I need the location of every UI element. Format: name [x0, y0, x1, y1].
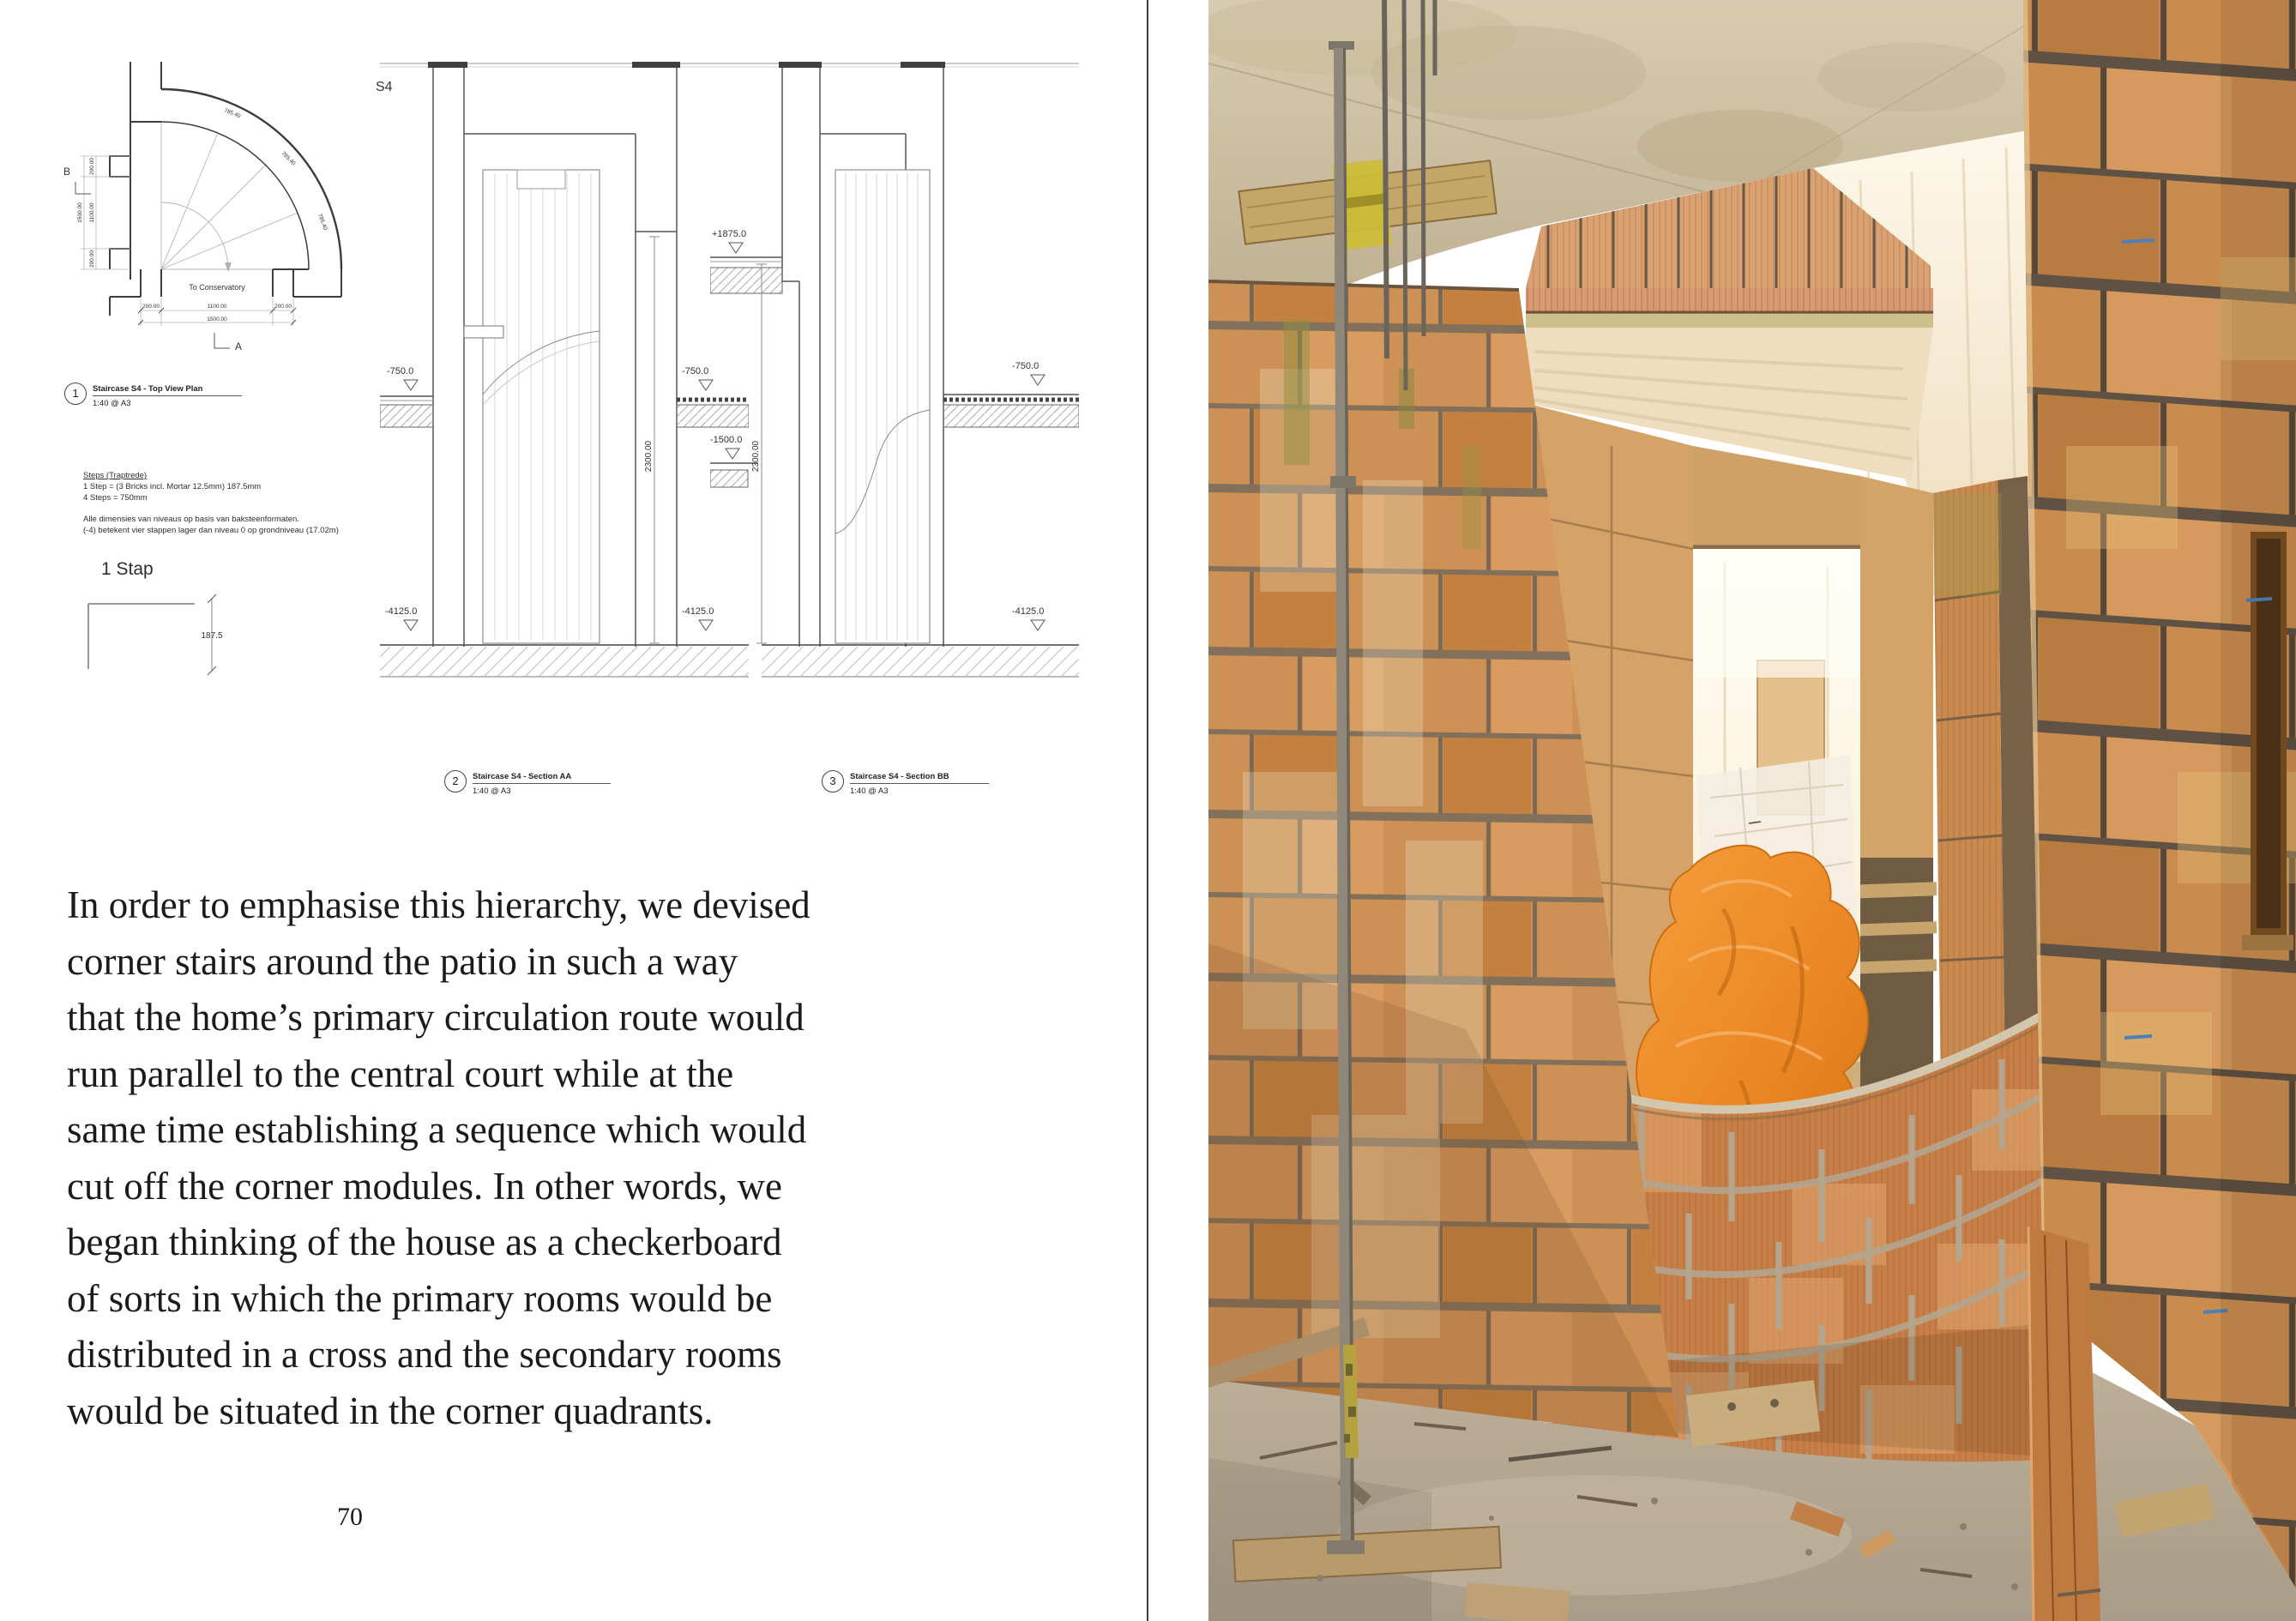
caption-number: 1	[64, 383, 87, 405]
svg-text:200.00: 200.00	[89, 158, 95, 175]
caption-number: 3	[822, 770, 844, 792]
caption-number: 2	[444, 770, 467, 792]
svg-text:2300.00: 2300.00	[644, 440, 654, 472]
notes-line: 1 Step = (3 Bricks incl. Mortar 12.5mm) …	[83, 481, 339, 492]
notes-line: 4 Steps = 750mm	[83, 492, 339, 503]
construction-photo	[1208, 0, 2296, 1621]
body-line: that the home’s primary circulation rout…	[67, 990, 1002, 1046]
svg-text:785.40: 785.40	[223, 107, 241, 119]
walkline-arrow-icon	[225, 262, 232, 272]
svg-text:1100.00: 1100.00	[89, 202, 95, 222]
step-diagram: 187.5	[81, 592, 262, 678]
room-label: To Conservatory	[189, 283, 245, 292]
plan-drawing-s4: 200.00 1100.00 200.00 1500.00 200.00 110…	[58, 55, 419, 398]
caption-scale: 1:40 @ A3	[850, 786, 989, 796]
svg-text:200.00: 200.00	[142, 304, 160, 310]
svg-text:-750.0: -750.0	[682, 366, 708, 377]
body-line: distributed in a cross and the secondary…	[67, 1327, 1002, 1383]
caption-title: Staircase S4 - Top View Plan	[93, 383, 242, 396]
caption-section-bb: 3 Staircase S4 - Section BB 1:40 @ A3	[822, 770, 989, 796]
caption-scale: 1:40 @ A3	[473, 786, 611, 796]
step-diagram-label: 1 Stap	[101, 559, 154, 580]
svg-text:+1875.0: +1875.0	[712, 229, 746, 239]
svg-text:785.40: 785.40	[316, 213, 328, 231]
steps-notes: Steps (Traptrede) 1 Step = (3 Bricks inc…	[83, 470, 339, 536]
svg-text:785.40: 785.40	[280, 150, 297, 166]
svg-text:2300.00: 2300.00	[751, 440, 761, 472]
book-spread: 200.00 1100.00 200.00 1500.00 200.00 110…	[0, 0, 2296, 1621]
body-line: of sorts in which the primary rooms woul…	[67, 1271, 1002, 1328]
section-bb-drawing: +1875.0 -750.0 -1500.0 -4125.0 2300.00	[710, 53, 1079, 705]
svg-text:1500.00: 1500.00	[77, 202, 83, 223]
caption-title: Staircase S4 - Section AA	[473, 770, 611, 784]
body-line: same time establishing a sequence which …	[67, 1102, 1002, 1159]
svg-text:187.5: 187.5	[201, 631, 222, 641]
notes-title: Steps (Traptrede)	[83, 470, 339, 481]
body-line: corner stairs around the patio in such a…	[67, 934, 1002, 991]
svg-text:200.00: 200.00	[89, 250, 95, 268]
svg-text:1500.00: 1500.00	[207, 316, 227, 322]
section-aa-drawing: -750.0 -750.0 -4125.0 -4125.0 2300.00	[380, 53, 749, 705]
svg-text:1100.00: 1100.00	[207, 304, 226, 310]
notes-line: (-4) betekent vier stappen lager dan niv…	[83, 525, 339, 536]
body-line: cut off the corner modules. In other wor…	[67, 1159, 1002, 1215]
body-line: began thinking of the house as a checker…	[67, 1214, 1002, 1271]
section-marker-b: B	[63, 166, 70, 178]
page-number: 70	[337, 1503, 363, 1532]
body-line: In order to emphasise this hierarchy, we…	[67, 877, 1002, 934]
caption-plan: 1 Staircase S4 - Top View Plan 1:40 @ A3	[64, 383, 242, 408]
svg-text:-4125.0: -4125.0	[1012, 606, 1044, 617]
svg-text:-4125.0: -4125.0	[385, 606, 417, 617]
svg-text:-1500.0: -1500.0	[710, 435, 742, 445]
svg-text:-750.0: -750.0	[1012, 361, 1039, 371]
svg-text:-750.0: -750.0	[387, 366, 413, 377]
section-marker-a: A	[235, 340, 242, 353]
svg-text:200.00: 200.00	[274, 304, 292, 310]
caption-section-aa: 2 Staircase S4 - Section AA 1:40 @ A3	[444, 770, 611, 796]
body-paragraph: In order to emphasise this hierarchy, we…	[67, 877, 1002, 1439]
body-line: run parallel to the central court while …	[67, 1046, 1002, 1103]
page-spine-divider	[1147, 0, 1148, 1621]
svg-text:-4125.0: -4125.0	[682, 606, 714, 617]
insulation-strip	[1526, 314, 1933, 328]
body-line: would be situated in the corner quadrant…	[67, 1383, 1002, 1440]
notes-line: Alle dimensies van niveaus op basis van …	[83, 514, 339, 525]
caption-scale: 1:40 @ A3	[93, 399, 242, 408]
base-board	[2028, 1226, 2100, 1621]
caption-title: Staircase S4 - Section BB	[850, 770, 989, 784]
